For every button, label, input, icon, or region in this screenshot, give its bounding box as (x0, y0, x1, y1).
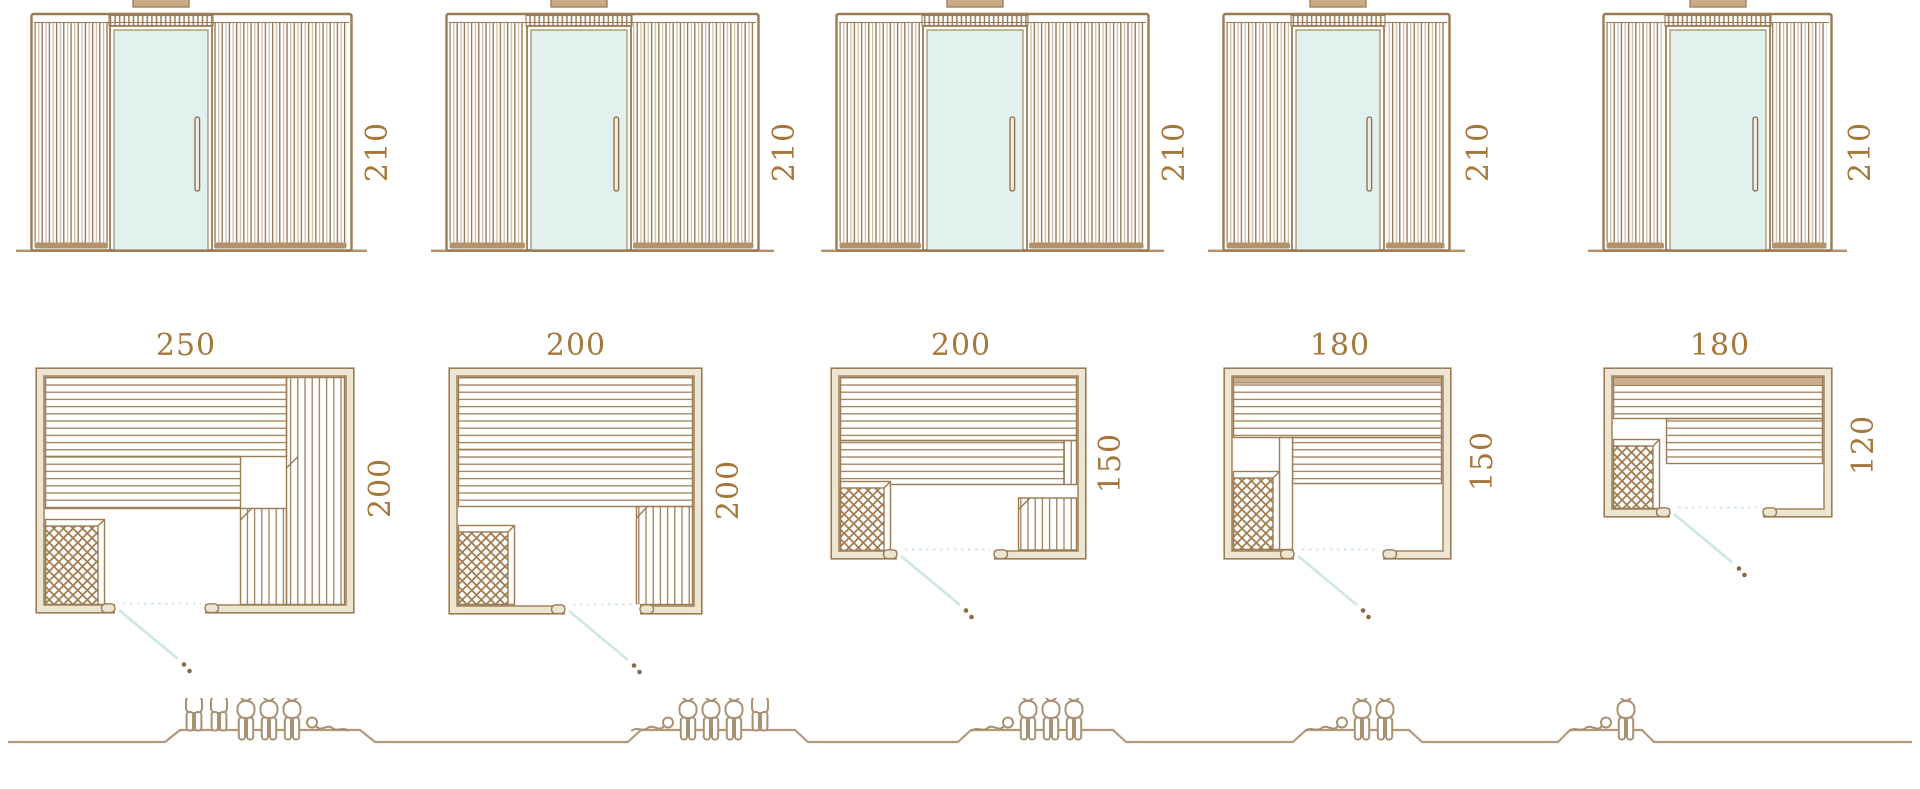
plan-4-depth-label: 150 (1468, 431, 1498, 491)
transom-vent (1291, 16, 1385, 27)
lying-person-icon (632, 718, 673, 731)
door-handle (1010, 117, 1015, 191)
bench-upper-back (1234, 378, 1442, 438)
sitting-person-icon (284, 698, 301, 740)
door-jamb-right (640, 605, 654, 614)
bench-lower-back (1667, 419, 1823, 464)
door-jamb-right (1383, 550, 1397, 559)
sitting-person-icon (1354, 698, 1371, 740)
door-handle-dot (187, 669, 192, 674)
door-jamb-left (102, 604, 116, 613)
plan-4-drawing (1223, 367, 1454, 645)
roof-vent (551, 0, 607, 7)
transom-vent (526, 16, 632, 27)
door-handle-dot (637, 670, 642, 675)
sitting-person-icon (703, 698, 720, 740)
glass-door (531, 30, 627, 250)
heater (841, 488, 885, 551)
bench-lower-back (46, 457, 241, 509)
heater (46, 526, 99, 605)
bench-upper-back (46, 378, 287, 457)
bench-lower-back (841, 441, 1065, 485)
transom-vent (109, 16, 213, 27)
plan-3-drawing (830, 367, 1089, 645)
plan-5-width-label: 180 (1690, 331, 1750, 361)
sitting-person-icon (1020, 698, 1037, 740)
capacity-group-3 (972, 698, 1083, 740)
roof-vent (1310, 0, 1366, 7)
door-jamb-left (552, 605, 566, 614)
backrest-rail (1614, 378, 1823, 386)
door-handle-dot (1361, 608, 1366, 613)
bench-lower-back (1293, 438, 1442, 484)
sitting-person-icon (680, 698, 697, 740)
sitting-person-icon (726, 698, 743, 740)
sitting-person-icon (1377, 698, 1394, 740)
bench-upper-back (459, 378, 693, 450)
door-opening (897, 549, 994, 561)
wall-slats-left (35, 23, 109, 243)
bench-side-strip (1064, 441, 1077, 485)
door-handle-dot (1737, 566, 1742, 571)
elevation-3-drawing (819, 0, 1166, 254)
elevation-2-drawing (429, 0, 776, 254)
heater (459, 532, 509, 605)
door-swing-line (119, 610, 178, 659)
wall-slats-right (1386, 23, 1445, 243)
door-handle-dot (969, 615, 974, 620)
sitting-person-icon (1043, 698, 1060, 740)
wall-slats-left (1607, 23, 1665, 243)
roof-vent (1690, 0, 1746, 7)
elevation-5-height-label: 210 (1846, 122, 1876, 182)
door-opening (115, 603, 205, 615)
transom-vent (922, 16, 1028, 27)
glass-door (927, 30, 1023, 250)
door-handle (195, 117, 200, 191)
wall-slats-left (450, 23, 526, 243)
door-jamb-left (1281, 550, 1295, 559)
door-jamb-right (994, 550, 1008, 559)
bench-lower-back (459, 450, 693, 507)
elevation-4-height-label: 210 (1464, 122, 1494, 182)
bench-upper-right (287, 378, 345, 605)
plan-3-width-label: 200 (931, 331, 991, 361)
door-jamb-right (205, 604, 219, 613)
plan-1-width-label: 250 (156, 331, 216, 361)
elevation-1-height-label: 210 (363, 122, 393, 182)
elevation-4-drawing (1206, 0, 1467, 254)
standing-person-icon (183, 698, 204, 731)
bench-corner-right (1019, 498, 1077, 550)
elevation-2-height-label: 210 (770, 122, 800, 182)
sitting-person-icon (1066, 698, 1083, 740)
plan-4-width-label: 180 (1310, 331, 1370, 361)
capacity-group-5 (1570, 698, 1635, 740)
standing-person-icon (749, 698, 770, 731)
door-handle-dot (964, 608, 969, 613)
plan-3-depth-label: 150 (1096, 433, 1126, 493)
wall-slats-right (1772, 23, 1827, 243)
bench-side-panel (1280, 438, 1293, 550)
sitting-person-icon (238, 698, 255, 740)
wall-slats-right (214, 23, 347, 243)
elevation-1-drawing (14, 0, 369, 254)
bench-right (637, 507, 693, 605)
plan-1-depth-label: 200 (366, 458, 396, 518)
lying-person-icon (307, 718, 348, 731)
plan-1-drawing (35, 367, 357, 699)
door-handle-dot (182, 662, 187, 667)
door-jamb-left (884, 550, 898, 559)
wall-slats-right (633, 23, 754, 243)
wall-slats-left (1227, 23, 1291, 243)
bench-upper-back (841, 378, 1077, 441)
roof-vent (133, 0, 189, 7)
plan-2-drawing (448, 367, 705, 700)
capacity-group-1 (183, 698, 348, 740)
glass-door (114, 30, 208, 250)
capacity-row-drawing (0, 698, 1920, 789)
lying-person-icon (1570, 718, 1611, 731)
plan-2-width-label: 200 (546, 331, 606, 361)
heater (1614, 446, 1654, 509)
lying-person-icon (972, 718, 1013, 731)
door-jamb-right (1763, 508, 1777, 517)
wall-slats-right (1029, 23, 1144, 243)
door-opening (1670, 507, 1763, 519)
lying-person-icon (1306, 718, 1347, 731)
elevation-5-drawing (1586, 0, 1849, 254)
heater (1234, 478, 1274, 550)
sitting-person-icon (1618, 698, 1635, 740)
sauna-dimension-sheet: { "colors": { "wood_line": "#9b7b52", "w… (0, 0, 1920, 789)
bench-lower-right (241, 509, 287, 605)
roof-vent (947, 0, 1003, 7)
door-swing-line (901, 556, 960, 605)
elevation-3-height-label: 210 (1160, 122, 1190, 182)
door-handle (1753, 117, 1758, 191)
door-handle-dot (632, 663, 637, 668)
capacity-group-2 (632, 698, 771, 740)
standing-person-icon (208, 698, 229, 731)
door-opening (565, 604, 640, 616)
sitting-person-icon (261, 698, 278, 740)
capacity-group-4 (1306, 698, 1394, 740)
door-swing-line (569, 611, 628, 660)
plan-2-depth-label: 200 (714, 460, 744, 520)
door-handle-dot (1366, 615, 1371, 620)
backrest-rail (1234, 378, 1442, 384)
door-swing-line (1674, 514, 1733, 563)
glass-door (1670, 30, 1766, 250)
transom-vent (1665, 16, 1771, 27)
plan-5-depth-label: 120 (1849, 415, 1879, 475)
door-handle-dot (1742, 573, 1747, 578)
door-handle (1367, 117, 1372, 191)
wall-slats-left (840, 23, 922, 243)
door-swing-line (1298, 556, 1357, 605)
door-handle (614, 117, 619, 191)
door-jamb-left (1657, 508, 1671, 517)
plan-5-drawing (1603, 367, 1835, 603)
door-opening (1294, 549, 1383, 561)
